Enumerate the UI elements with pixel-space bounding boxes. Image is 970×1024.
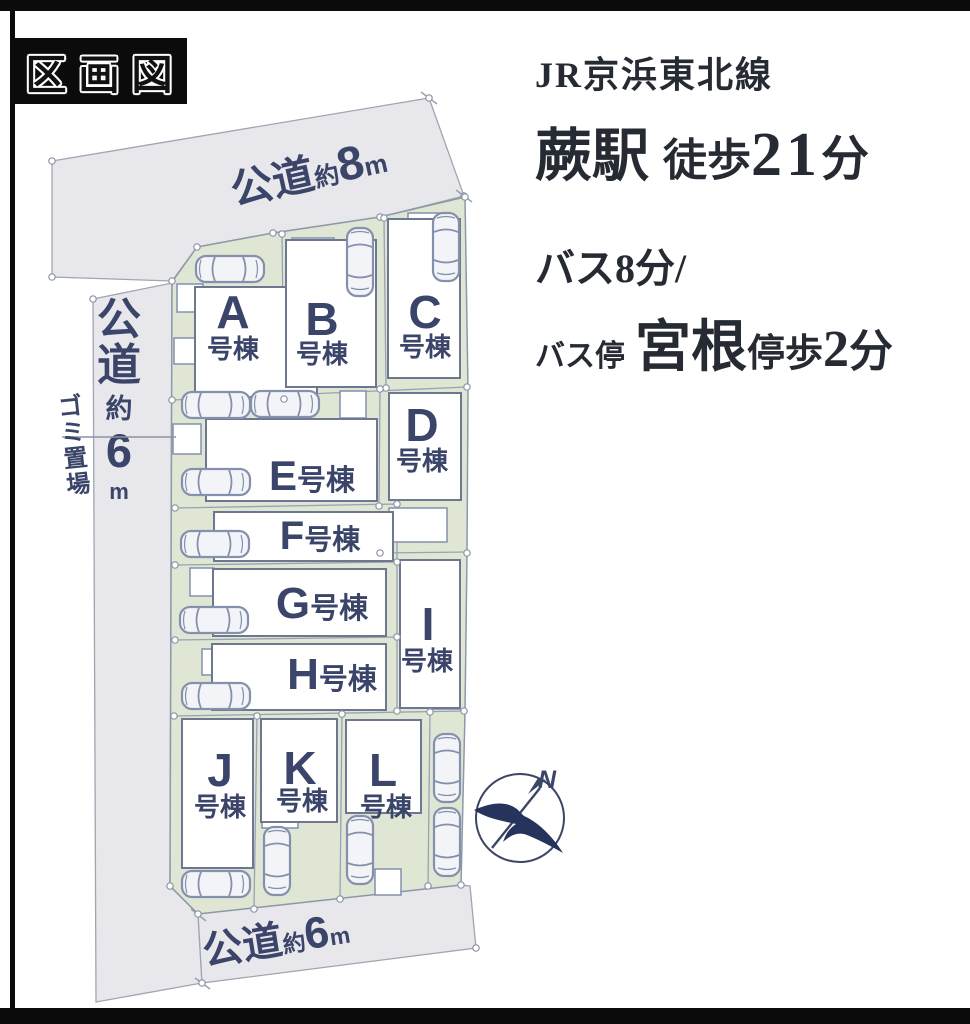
svg-text:ゴ: ゴ [57, 392, 84, 422]
stop-walk-minutes: 2 [823, 321, 849, 378]
svg-text:号棟: 号棟 [401, 646, 454, 676]
car-icon [180, 607, 248, 633]
left-border-bar [10, 0, 15, 1010]
stop-walk-unit: 分 [849, 327, 893, 376]
svg-text:公: 公 [97, 295, 141, 344]
car-icon [181, 531, 249, 557]
svg-text:場: 場 [65, 470, 92, 499]
car-icon [347, 816, 373, 884]
car-icon [264, 827, 290, 895]
svg-text:m: m [109, 479, 129, 504]
plot-map-title-badge: 区画図 [13, 38, 187, 104]
car-icon [347, 228, 373, 296]
access-info: JR京浜東北線 蕨駅徒歩21分 バス8分/ バス停宮根停歩2分 [535, 46, 965, 383]
bus-stop-name: 宮根 [635, 317, 747, 379]
svg-text:D: D [405, 399, 438, 451]
svg-text:ミ: ミ [60, 418, 87, 447]
svg-text:道: 道 [97, 341, 141, 390]
car-icon [251, 391, 319, 417]
svg-text:号棟: 号棟 [276, 786, 329, 816]
svg-text:I: I [422, 598, 435, 650]
svg-text:号棟: 号棟 [399, 332, 452, 362]
svg-text:約: 約 [106, 393, 133, 424]
car-icon [182, 871, 250, 897]
station-walk-text: 蕨駅徒歩21分 [535, 110, 965, 192]
plot-map-title: 区画図 [16, 41, 185, 101]
walk-label: 徒歩 [663, 136, 751, 185]
bus-stop-label: バス停 [535, 340, 625, 373]
svg-text:N: N [538, 766, 557, 794]
car-icon [434, 734, 460, 802]
walk-minutes: 21 [751, 121, 821, 189]
top-border-bar [0, 0, 970, 11]
car-icon [182, 469, 250, 495]
svg-text:A: A [216, 286, 249, 338]
walk-minutes-unit: 分 [821, 133, 869, 186]
stop-walk-label: 停歩 [747, 333, 823, 375]
bus-stop-text: バス停宮根停歩2分 [535, 302, 965, 383]
car-icon [196, 256, 264, 282]
car-icon [182, 683, 250, 709]
lot-map-page: 公道約8m 公 道 約 6 m 公道約6m ゴ ミ 置 場 A号棟 B号棟 C号… [0, 0, 970, 1024]
svg-text:号棟: 号棟 [360, 792, 413, 822]
bottom-border-bar [0, 1008, 970, 1024]
compass-needle [474, 803, 563, 853]
svg-text:号棟: 号棟 [194, 792, 247, 822]
compass-icon: N [474, 766, 564, 862]
svg-text:号棟: 号棟 [296, 339, 349, 369]
svg-text:置: 置 [62, 444, 89, 473]
bus-ride-text: バス8分/ [535, 236, 965, 294]
garbage-label: ゴ ミ 置 場 [57, 392, 92, 500]
railway-line-text: JR京浜東北線 [535, 46, 965, 98]
svg-text:6: 6 [106, 424, 132, 477]
svg-text:C: C [408, 286, 441, 338]
car-icon [433, 213, 459, 281]
car-icon [434, 808, 460, 876]
station-name: 蕨駅 [535, 125, 649, 188]
svg-text:J: J [207, 744, 233, 796]
svg-text:号棟: 号棟 [207, 334, 260, 364]
svg-text:号棟: 号棟 [396, 446, 449, 476]
svg-text:B: B [305, 293, 338, 345]
car-icon [182, 392, 250, 418]
svg-text:L: L [369, 744, 397, 796]
garbage-box [173, 424, 201, 454]
